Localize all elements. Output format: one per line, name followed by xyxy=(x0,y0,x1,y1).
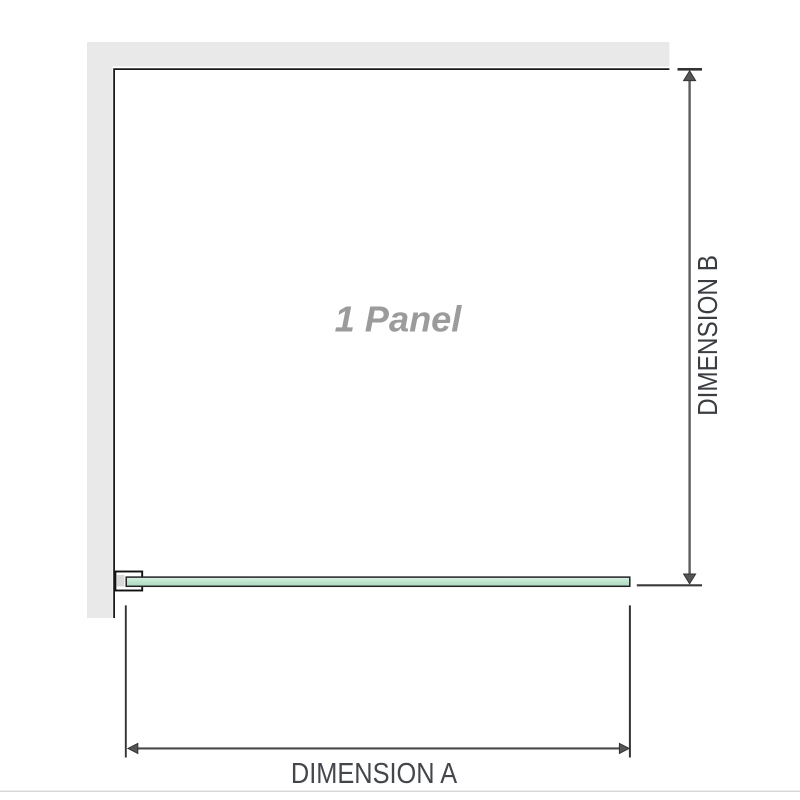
svg-text:1 Panel: 1 Panel xyxy=(335,299,463,340)
svg-text:DIMENSION A: DIMENSION A xyxy=(291,758,457,790)
svg-text:DIMENSION B: DIMENSION B xyxy=(692,255,724,416)
